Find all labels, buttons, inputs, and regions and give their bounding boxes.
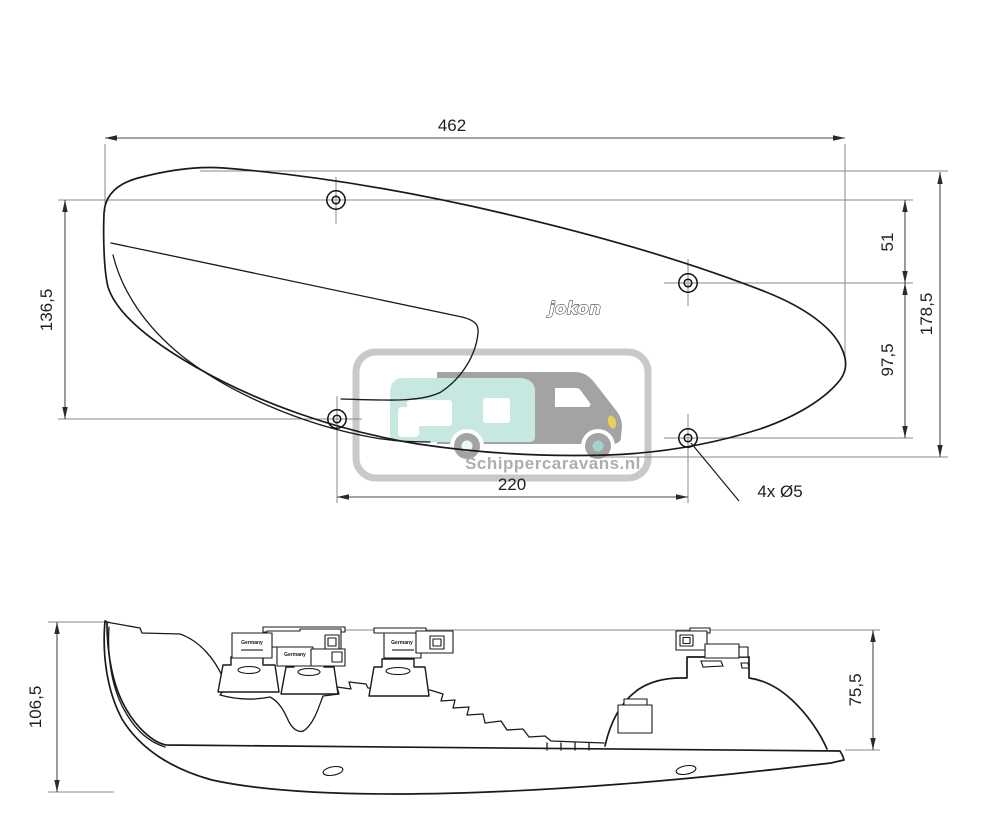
holder-slot <box>298 669 320 676</box>
base-oval-hole <box>675 764 696 776</box>
plug-window-inner <box>433 639 441 646</box>
lens-seam-upper <box>111 243 478 400</box>
holder-slot <box>386 668 410 675</box>
caravan-window-1 <box>407 400 452 426</box>
front-wheel-hub <box>593 441 604 452</box>
arrowhead <box>54 780 59 792</box>
arrowhead <box>676 494 688 499</box>
plug-window-inner <box>683 638 690 644</box>
watermark: Schippercaravans.nl <box>356 352 648 478</box>
plug-window-inner <box>328 638 336 646</box>
side-box-lip <box>624 699 647 705</box>
arrowhead <box>937 445 942 457</box>
dimension-label-overall-height: 178,5 <box>917 293 936 336</box>
bulb-holder <box>369 659 429 696</box>
brand-logo: jokon <box>546 299 601 319</box>
arrowhead <box>62 407 67 419</box>
neck-slot <box>701 661 723 667</box>
base-oval-hole <box>322 765 343 777</box>
hole-note-leader <box>691 443 739 501</box>
connector-flange <box>705 644 739 658</box>
arrowhead <box>105 135 117 140</box>
arrowhead <box>833 135 845 140</box>
arrowhead <box>870 630 875 642</box>
side-view: Germany Germany Germany <box>104 621 844 794</box>
caravan-window-2 <box>483 398 510 423</box>
arrowhead <box>337 494 349 499</box>
connector-country-label: Germany <box>284 652 306 658</box>
gasket-contour <box>106 622 604 743</box>
technical-drawing-canvas: Schippercaravans.nl <box>0 0 1000 835</box>
dimension-label-side-height: 106,5 <box>26 686 45 729</box>
dimension-label-left-hole-spacing: 136,5 <box>37 289 56 332</box>
connector-country-label: Germany <box>391 640 413 646</box>
neck-slot <box>741 663 749 668</box>
dimension-label-bottom-hole-spacing: 220 <box>498 475 526 494</box>
bulb-holder <box>218 657 279 692</box>
arrowhead <box>902 426 907 438</box>
arrowhead <box>902 283 907 295</box>
dimension-label-top-hole-offset: 51 <box>878 233 897 252</box>
side-box <box>618 705 652 733</box>
dimension-label-overall-width: 462 <box>438 116 466 135</box>
arrowhead <box>870 738 875 750</box>
cable-connectors: Germany Germany Germany <box>232 627 748 666</box>
holder-slot <box>238 667 260 674</box>
hole-note-label: 4x Ø5 <box>757 482 802 501</box>
motorhome-graphic <box>390 372 622 463</box>
dimension-label-body-depth: 75,5 <box>846 673 865 706</box>
connector-country-label: Germany <box>241 640 263 646</box>
arrowhead <box>902 200 907 212</box>
dimension-label-right-hole-spacing: 97,5 <box>878 343 897 376</box>
plug-window <box>332 652 342 662</box>
arrowhead <box>54 622 59 634</box>
arrowhead <box>62 200 67 212</box>
connector-tab <box>739 647 748 657</box>
arrowhead <box>937 172 942 184</box>
arrowhead <box>902 271 907 283</box>
drawing-svg: Schippercaravans.nl <box>0 0 1000 835</box>
